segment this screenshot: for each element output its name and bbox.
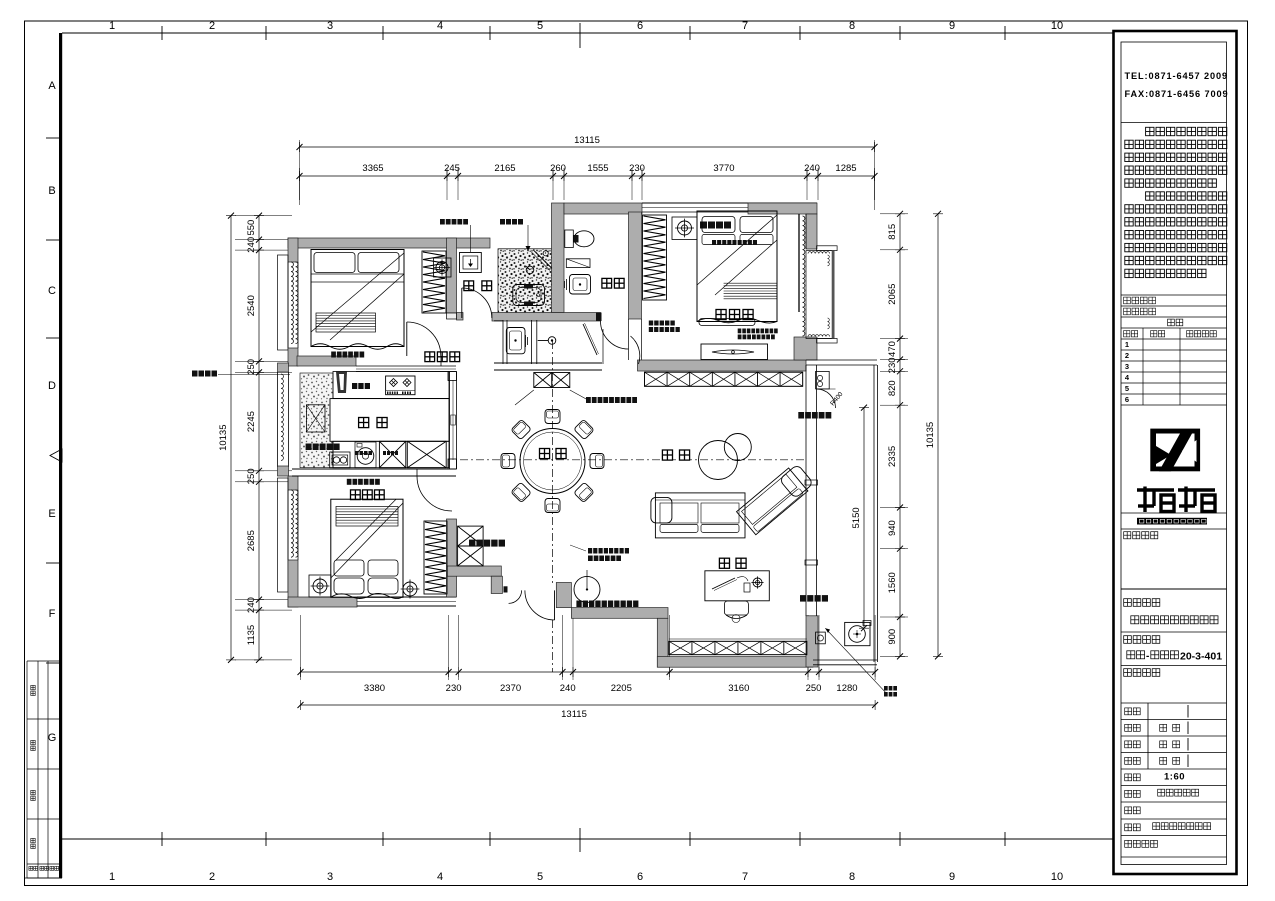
svg-text:6: 6 <box>637 20 643 32</box>
svg-text:1560: 1560 <box>887 572 898 593</box>
svg-text:2: 2 <box>1125 351 1129 360</box>
svg-text:1:60: 1:60 <box>1164 772 1185 783</box>
svg-text:20-3-401: 20-3-401 <box>1180 651 1222 663</box>
svg-text:E: E <box>48 508 55 520</box>
svg-text:2205: 2205 <box>611 683 632 694</box>
svg-text:3380: 3380 <box>364 683 385 694</box>
svg-text:10135: 10135 <box>218 424 229 450</box>
svg-text:3: 3 <box>327 871 333 883</box>
svg-text:G: G <box>48 732 57 744</box>
svg-text:240: 240 <box>246 597 257 613</box>
svg-text:D: D <box>48 380 56 392</box>
svg-text:1: 1 <box>109 871 115 883</box>
svg-text:5: 5 <box>537 871 543 883</box>
svg-text:FAX:0871-6456 7009: FAX:0871-6456 7009 <box>1125 89 1229 99</box>
svg-text:1: 1 <box>1125 340 1129 349</box>
svg-text:1280: 1280 <box>836 683 857 694</box>
svg-text:245: 245 <box>444 163 460 174</box>
svg-text:8: 8 <box>849 20 855 32</box>
svg-text:2370: 2370 <box>500 683 521 694</box>
svg-text:240: 240 <box>560 683 576 694</box>
svg-text:2335: 2335 <box>887 446 898 467</box>
svg-text:9: 9 <box>949 871 955 883</box>
svg-text:250: 250 <box>806 683 822 694</box>
svg-text:B: B <box>48 185 55 197</box>
svg-text:1: 1 <box>109 20 115 32</box>
svg-text:230: 230 <box>887 357 898 373</box>
svg-text:2165: 2165 <box>494 163 515 174</box>
svg-text:240: 240 <box>804 163 820 174</box>
svg-text:2: 2 <box>209 871 215 883</box>
svg-text:250: 250 <box>246 468 257 484</box>
svg-text:230: 230 <box>629 163 645 174</box>
svg-text:4: 4 <box>437 20 443 32</box>
svg-text:6: 6 <box>637 871 643 883</box>
svg-text:5: 5 <box>1125 384 1129 393</box>
svg-text:3160: 3160 <box>728 683 749 694</box>
svg-text:7: 7 <box>742 871 748 883</box>
svg-text:10: 10 <box>1051 871 1063 883</box>
svg-text:3: 3 <box>1125 362 1129 371</box>
svg-text:7: 7 <box>742 20 748 32</box>
svg-text:F: F <box>49 608 56 620</box>
svg-text:A: A <box>48 80 56 92</box>
svg-text:2065: 2065 <box>887 284 898 305</box>
svg-text:900: 900 <box>887 629 898 645</box>
svg-text:260: 260 <box>550 163 566 174</box>
svg-text:250: 250 <box>246 359 257 375</box>
svg-text:5: 5 <box>537 20 543 32</box>
svg-text:8: 8 <box>849 871 855 883</box>
svg-text:1555: 1555 <box>587 163 608 174</box>
svg-text:1285: 1285 <box>835 163 856 174</box>
svg-text:940: 940 <box>887 520 898 536</box>
svg-text:TEL:0871-6457 2009: TEL:0871-6457 2009 <box>1125 71 1229 81</box>
svg-text:820: 820 <box>887 380 898 396</box>
svg-text:2685: 2685 <box>246 530 257 551</box>
svg-text:2540: 2540 <box>246 295 257 316</box>
svg-text:9: 9 <box>949 20 955 32</box>
svg-text:230: 230 <box>446 683 462 694</box>
svg-text:240: 240 <box>246 237 257 253</box>
svg-text:10135: 10135 <box>925 422 936 448</box>
svg-text:470: 470 <box>887 341 898 357</box>
svg-text:5150: 5150 <box>851 507 862 528</box>
svg-text:815: 815 <box>887 224 898 240</box>
svg-text:13115: 13115 <box>574 135 600 146</box>
svg-text:1135: 1135 <box>246 625 257 645</box>
svg-text:3770: 3770 <box>713 163 734 174</box>
svg-text:6: 6 <box>1125 395 1129 404</box>
svg-text:10: 10 <box>1051 20 1063 32</box>
svg-text:550: 550 <box>246 220 257 236</box>
svg-text:4: 4 <box>437 871 443 883</box>
svg-text:C: C <box>48 285 56 297</box>
svg-text:2: 2 <box>209 20 215 32</box>
svg-text:2245: 2245 <box>246 411 257 432</box>
svg-text:3: 3 <box>327 20 333 32</box>
svg-text:-: - <box>1146 651 1149 662</box>
svg-text:13115: 13115 <box>561 709 587 720</box>
svg-text:3365: 3365 <box>362 163 383 174</box>
